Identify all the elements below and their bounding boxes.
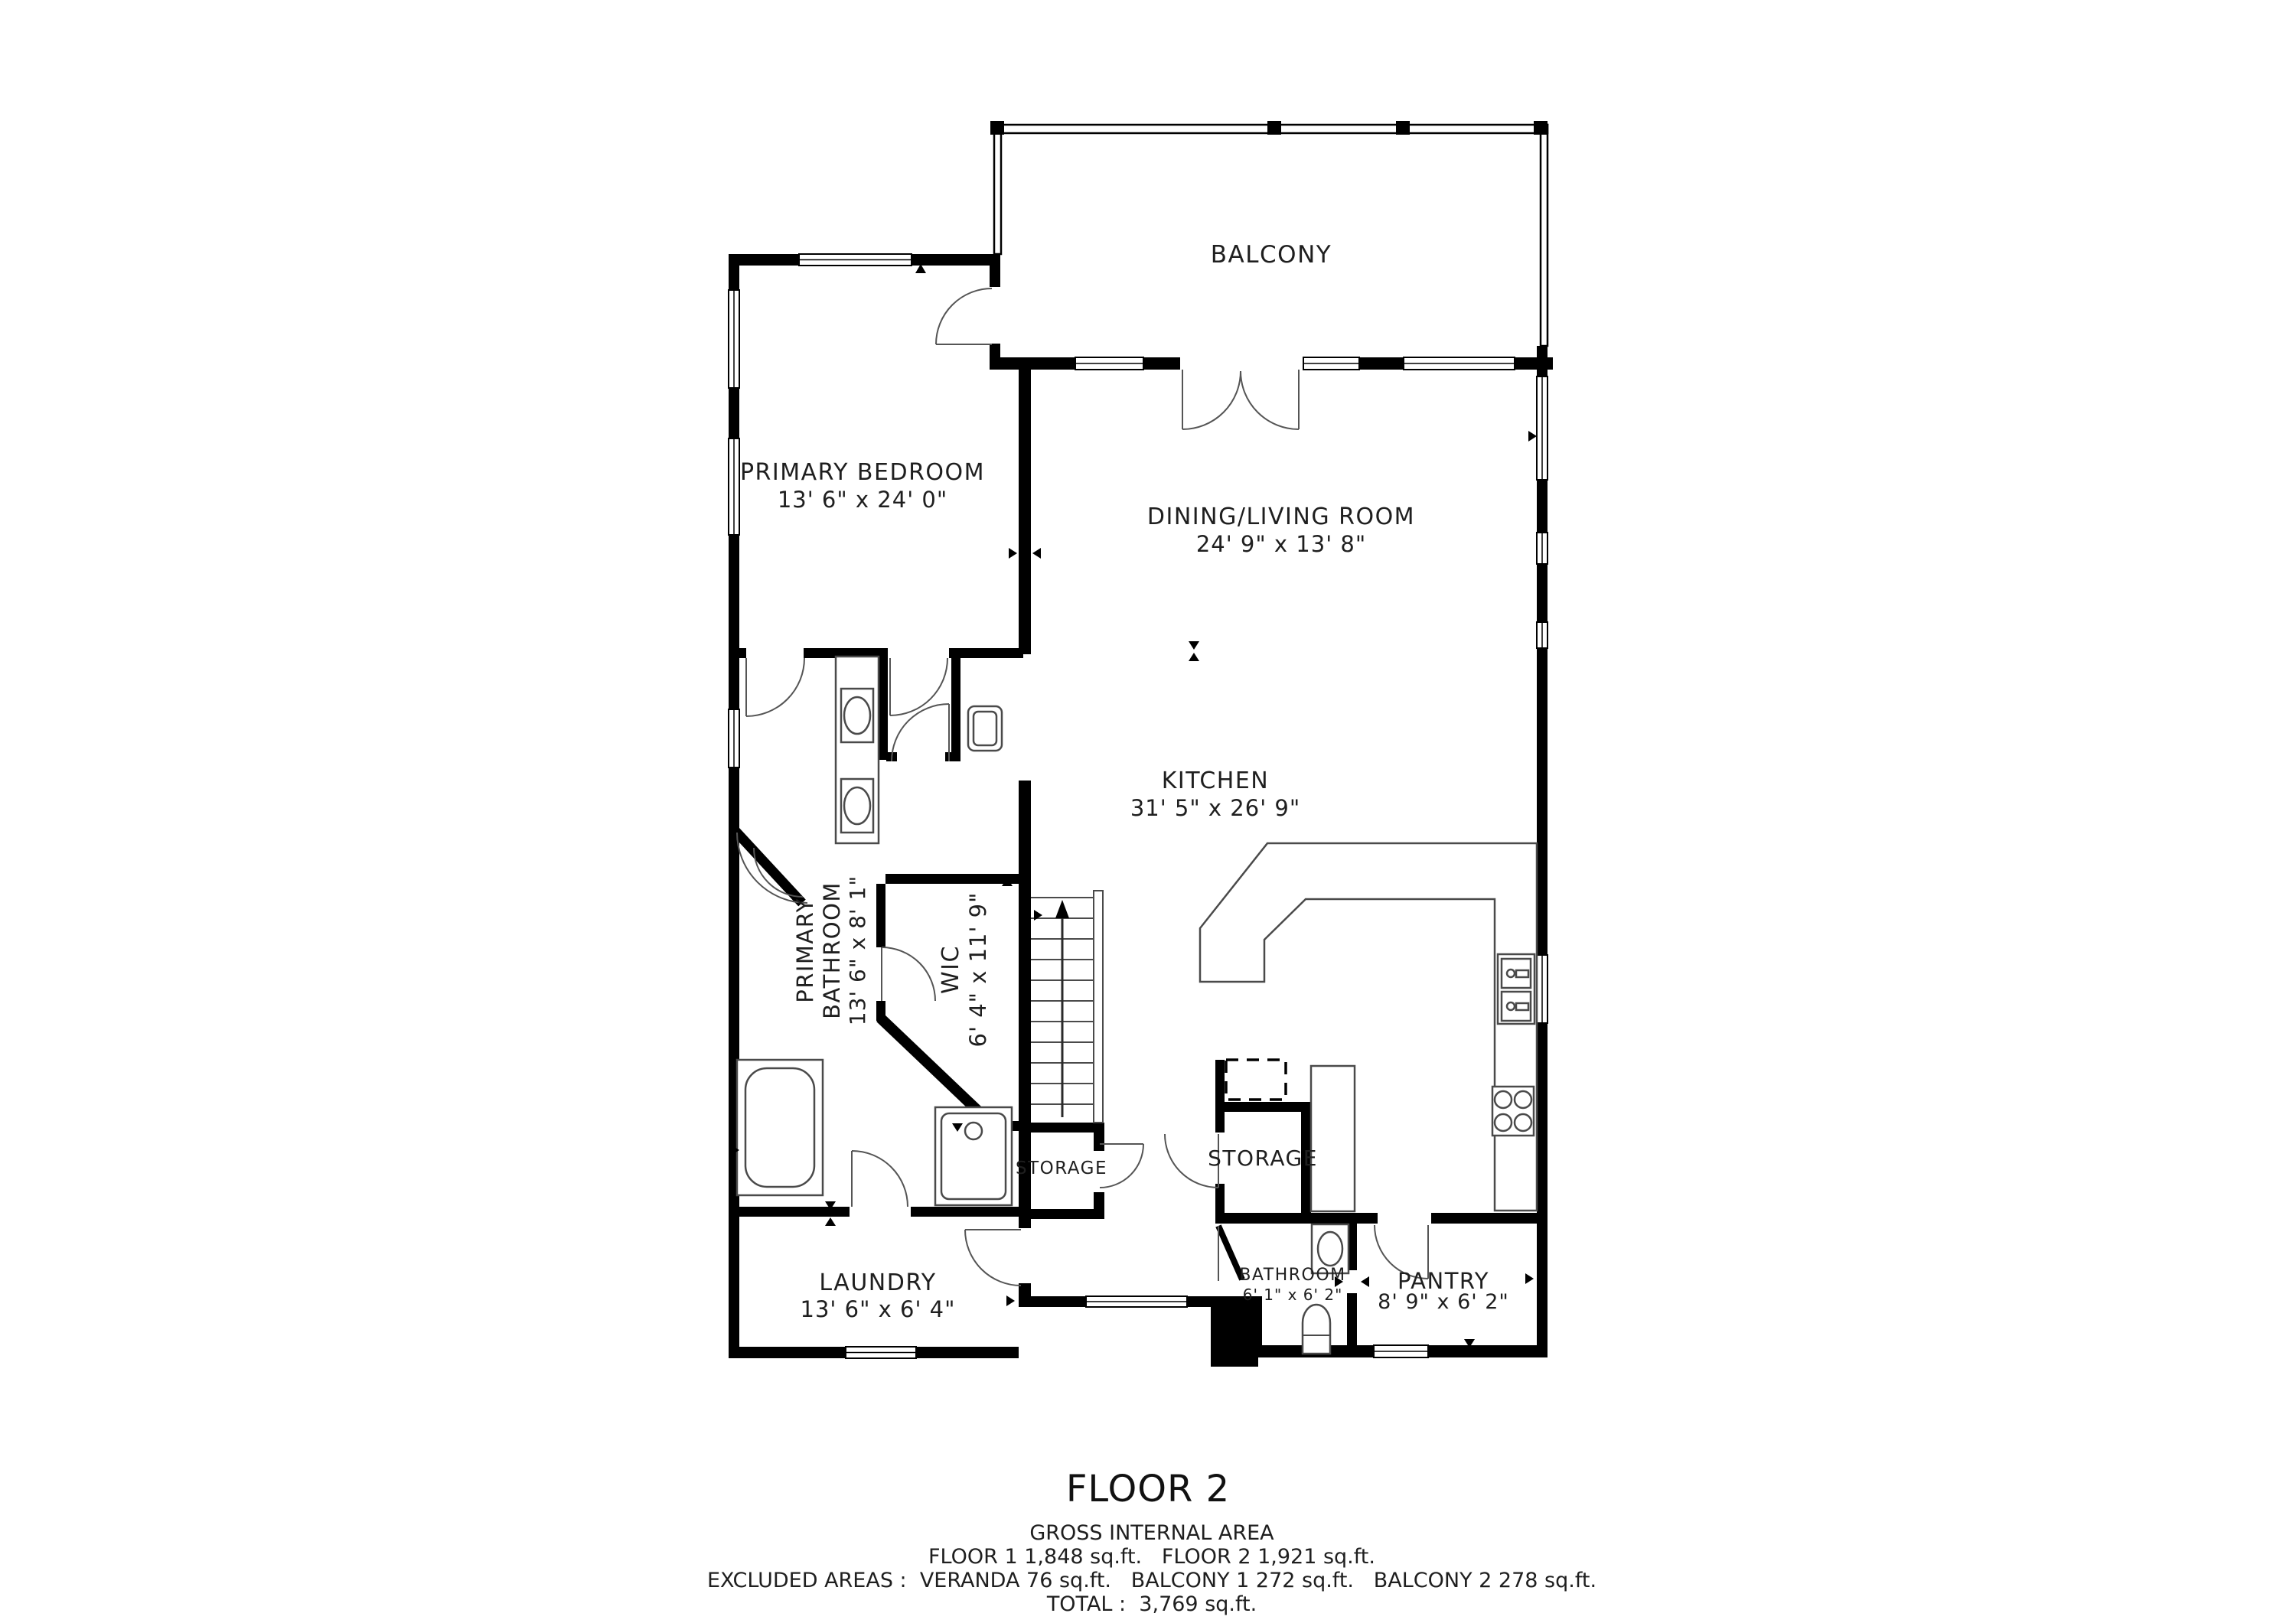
kitchen-label: KITCHEN: [1162, 768, 1270, 794]
floor-areas-line: FLOOR 1 1,848 sq.ft. FLOOR 2 1,921 sq.ft…: [928, 1545, 1375, 1569]
total-area-line: TOTAL : 3,769 sq.ft.: [1046, 1592, 1257, 1616]
bathroom-dims: 6' 1" x 6' 2": [1243, 1286, 1343, 1304]
door-balcony-french: [1182, 370, 1299, 429]
window: [846, 1347, 916, 1358]
excluded-areas-line: EXCLUDED AREAS : VERANDA 76 sq.ft. BALCO…: [707, 1569, 1596, 1592]
entry-step: [1211, 1296, 1258, 1367]
pantry-dims: 8' 9" x 6' 2": [1378, 1290, 1509, 1314]
door-wc-inner: [892, 704, 949, 761]
bathtub: [737, 1060, 823, 1195]
window: [1303, 357, 1359, 370]
door-wc: [890, 658, 947, 715]
bathroom-label: BATHROOM: [1239, 1266, 1345, 1285]
balcony-structure: [990, 121, 1548, 346]
footer: FLOOR 2 GROSS INTERNAL AREA FLOOR 1 1,84…: [707, 1468, 1596, 1616]
window: [729, 290, 739, 388]
laundry-dims: 13' 6" x 6' 4": [801, 1296, 956, 1322]
window: [1537, 533, 1548, 564]
balcony-post: [1534, 121, 1548, 135]
window: [1404, 357, 1515, 370]
door-bedroom-balcony: [936, 288, 992, 344]
cooktop: [1492, 1087, 1534, 1136]
window: [799, 254, 912, 266]
stairs-up-arrow: [1055, 900, 1069, 918]
staircase: [1031, 891, 1103, 1123]
floor-plan-canvas: BALCONY PRIMARY BEDROOM 13' 6" x 24' 0" …: [0, 0, 2296, 1623]
primary-bathroom-label-line2: BATHROOM: [819, 882, 845, 1019]
storage-right-label: STORAGE: [1208, 1146, 1318, 1171]
window: [1537, 955, 1548, 1023]
double-oven: [1498, 954, 1534, 1024]
dining-living-dims: 24' 9" x 13' 8": [1196, 531, 1366, 557]
window: [1537, 376, 1548, 480]
wic-label: WIC: [938, 945, 964, 994]
refrigerator-dashed: [1226, 1060, 1286, 1100]
window: [1374, 1345, 1428, 1357]
window: [1075, 357, 1143, 370]
window: [1537, 622, 1548, 648]
balcony-post: [990, 121, 1004, 135]
gross-internal-area-label: GROSS INTERNAL AREA: [1029, 1521, 1274, 1545]
door-primary-bathroom: [852, 1151, 908, 1207]
toilet-wc: [968, 706, 1002, 751]
cabinet: [1311, 1066, 1355, 1211]
floor-plan-page: BALCONY PRIMARY BEDROOM 13' 6" x 24' 0" …: [0, 0, 2296, 1623]
window: [729, 438, 739, 535]
storage-left-label: STORAGE: [1016, 1159, 1107, 1178]
laundry-label: LAUNDRY: [819, 1269, 936, 1296]
floor-title: FLOOR 2: [1066, 1468, 1230, 1511]
shower: [935, 1107, 1012, 1205]
primary-bedroom-dims: 13' 6" x 24' 0": [778, 487, 947, 513]
door-bedroom-bathroom: [746, 658, 804, 716]
kitchen-dims: 31' 5" x 26' 9": [1130, 795, 1300, 821]
balcony-post: [1267, 121, 1281, 135]
door-laundry: [965, 1230, 1021, 1286]
door-wic: [882, 947, 935, 1001]
window: [1086, 1296, 1187, 1307]
balcony-post: [1396, 121, 1410, 135]
primary-bathroom-dims: 13' 6" x 8' 1": [845, 875, 870, 1025]
toilet: [1303, 1305, 1330, 1354]
wic-dims: 6' 4" x 11' 9": [965, 892, 991, 1048]
dining-living-label: DINING/LIVING ROOM: [1147, 504, 1415, 530]
balcony-label: BALCONY: [1211, 241, 1332, 269]
window: [729, 709, 739, 768]
primary-bedroom-label: PRIMARY BEDROOM: [740, 459, 985, 486]
double-vanity: [836, 657, 879, 843]
primary-bathroom-label-line1: PRIMARY: [792, 898, 818, 1003]
